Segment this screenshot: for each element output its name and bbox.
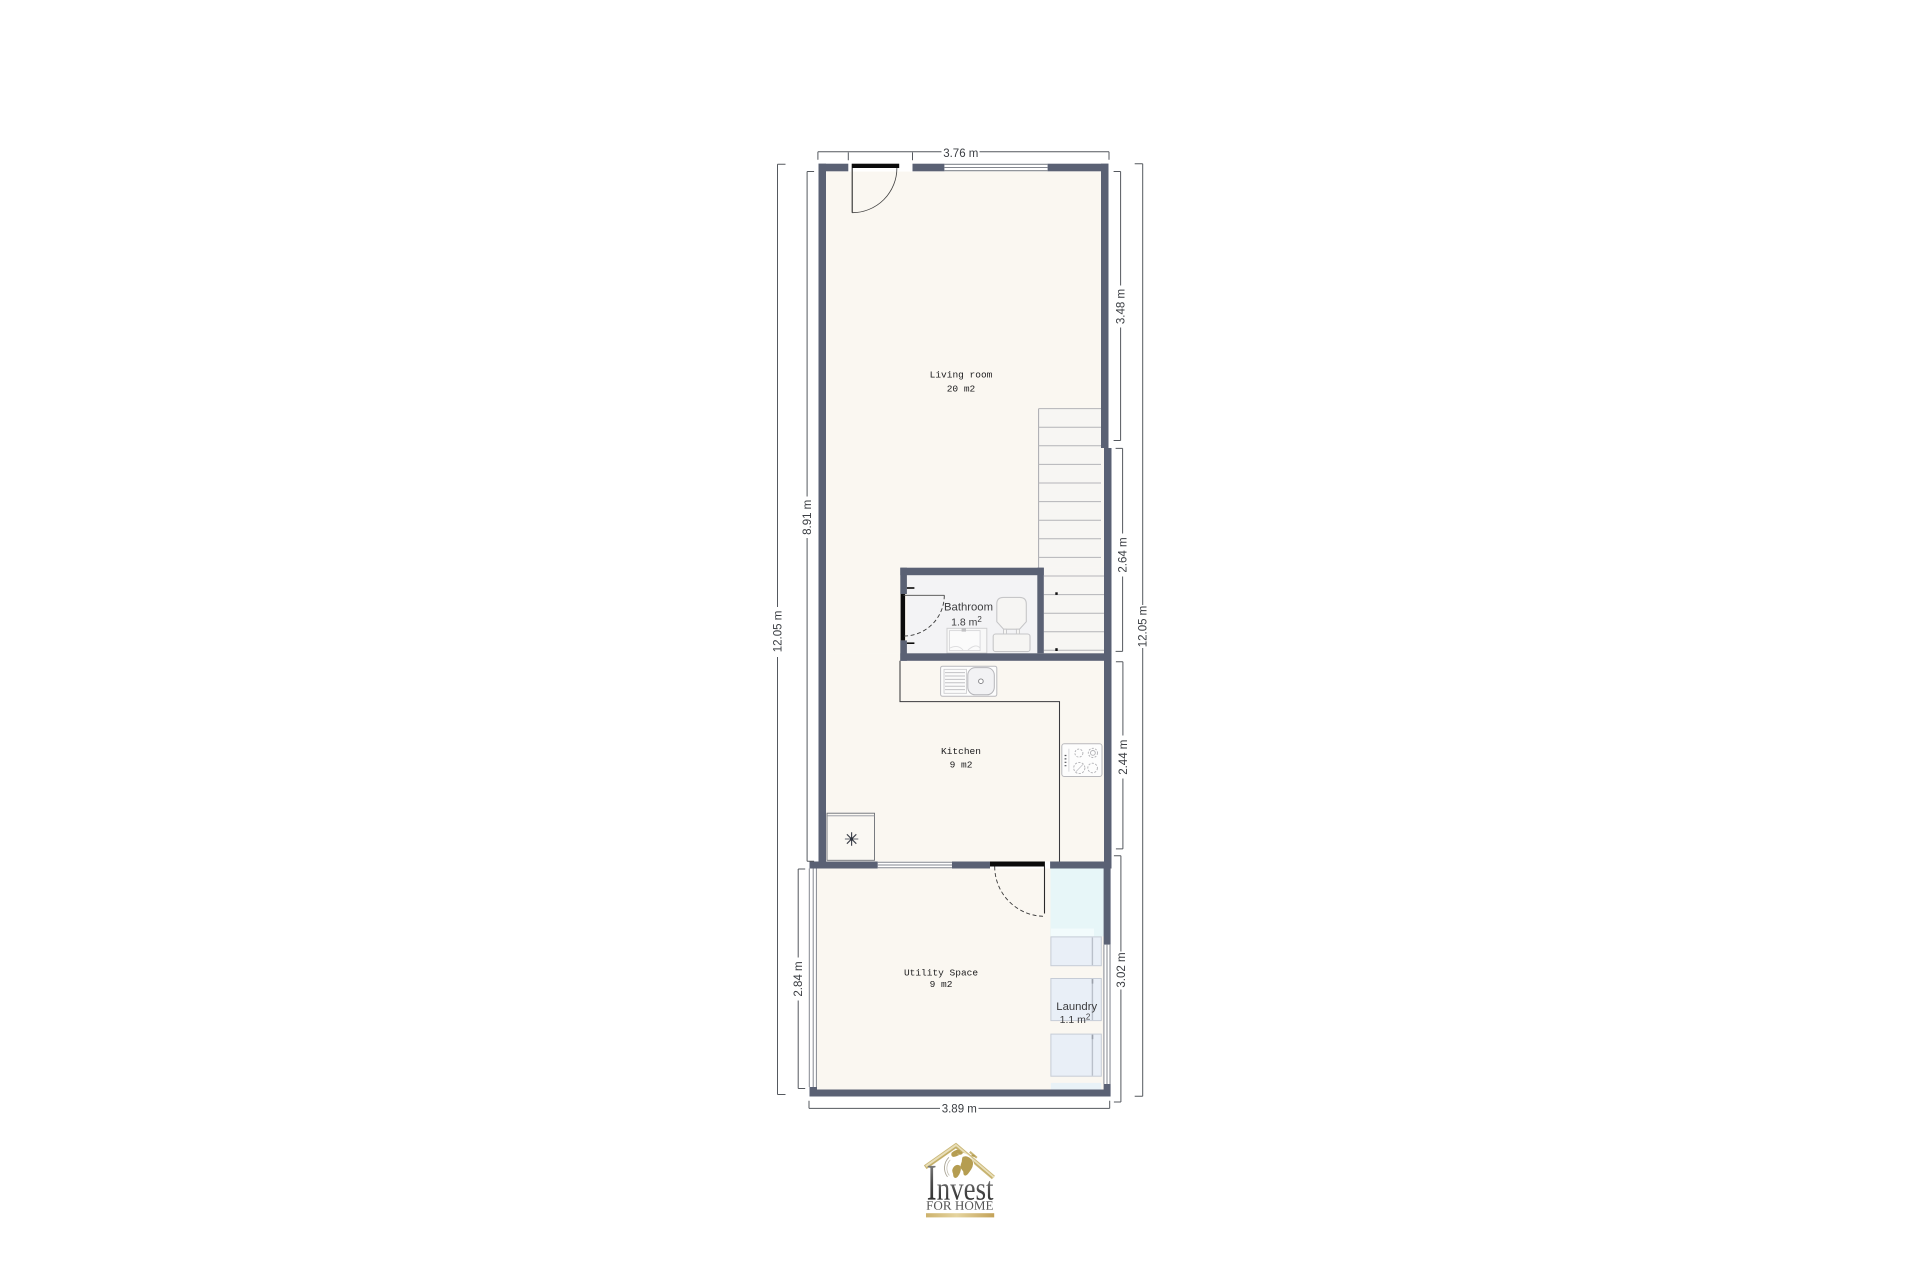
svg-text:Living room: Living room <box>930 370 993 381</box>
svg-text:12.05 m: 12.05 m <box>1138 606 1150 648</box>
svg-text:3.76 m: 3.76 m <box>943 148 978 160</box>
svg-text:Utility Space: Utility Space <box>904 968 978 979</box>
svg-text:3.48 m: 3.48 m <box>1116 289 1128 324</box>
svg-text:2.44 m: 2.44 m <box>1118 740 1130 775</box>
svg-text:9 m2: 9 m2 <box>950 759 973 770</box>
svg-text:8.91 m: 8.91 m <box>802 500 814 535</box>
svg-text:2.64 m: 2.64 m <box>1118 537 1130 572</box>
svg-text:2.84 m: 2.84 m <box>793 961 805 996</box>
svg-text:Laundry: Laundry <box>1056 1001 1097 1013</box>
svg-text:Bathroom: Bathroom <box>944 601 993 613</box>
svg-text:3.02 m: 3.02 m <box>1116 952 1128 987</box>
svg-text:Kitchen: Kitchen <box>941 746 981 757</box>
svg-text:12.05 m: 12.05 m <box>773 611 785 653</box>
svg-text:3.89 m: 3.89 m <box>942 1104 977 1116</box>
svg-text:9 m2: 9 m2 <box>930 979 953 990</box>
svg-text:20 m2: 20 m2 <box>947 384 976 395</box>
